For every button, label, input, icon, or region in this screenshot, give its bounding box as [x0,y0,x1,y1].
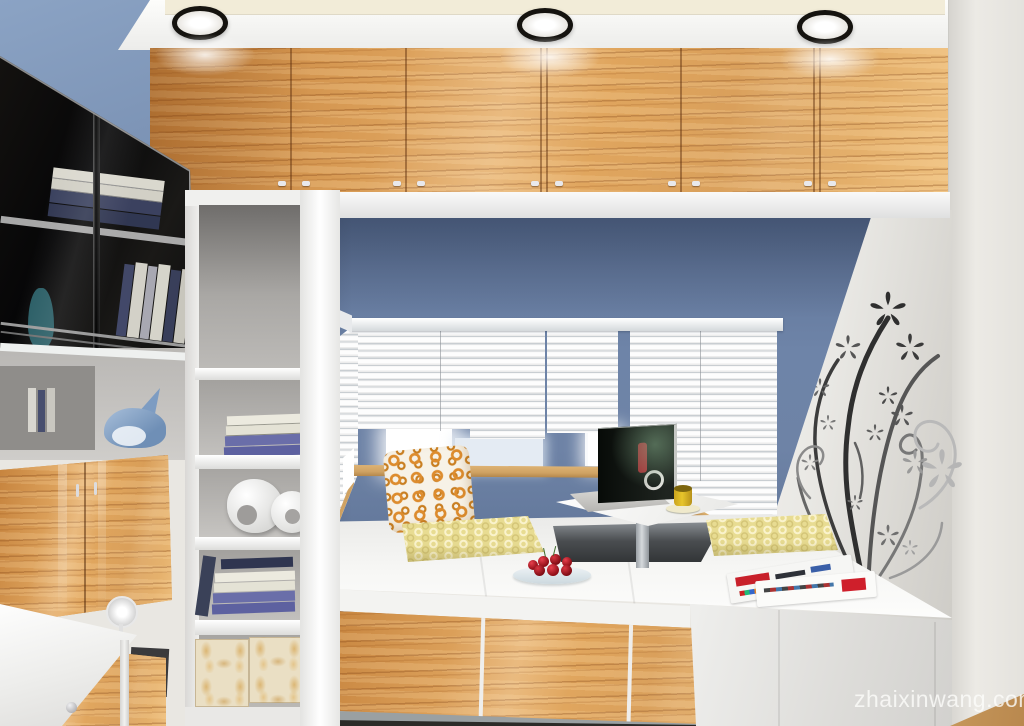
light-glow-3 [775,36,885,82]
vase-hole [285,509,300,524]
cabinet-handle[interactable] [531,181,539,186]
magazine-blue-block [810,564,831,573]
shelf-board [195,455,303,469]
tower-corner-post [300,190,340,726]
tower-opening-vases [199,469,300,537]
magazine-color-bars [764,582,834,592]
shelf-board [195,620,303,635]
cabinet-handle[interactable] [555,181,563,186]
door-handle[interactable] [94,482,97,495]
door-handle[interactable] [76,484,79,497]
room-rendering: zhaixinwang.com [0,0,1024,726]
blind-panel-a [358,331,470,429]
magazine-red-block [841,578,866,592]
cabinet-handle[interactable] [692,181,700,186]
storage-box [249,637,303,703]
book [212,602,295,615]
book [38,390,45,432]
vase-hole [237,505,257,525]
desk-leg [120,640,129,726]
bird-belly [112,426,146,446]
tower-opening-books [199,380,300,455]
book [221,557,293,570]
light-glow-1 [150,32,260,78]
door-reflection [98,458,106,608]
blind-panel-c [547,331,618,433]
storage-box [195,639,249,707]
cabinet-handle[interactable] [804,181,812,186]
blind-headrail [350,318,783,331]
screen-image-haze [598,425,674,503]
cherry [534,565,545,576]
cabinet-handle[interactable] [828,181,836,186]
cabinet-seam [680,48,682,194]
shelf-board [195,368,303,380]
left-wood-cabinet[interactable] [0,440,172,630]
seat-pillow [383,444,476,533]
drawer-gap [478,606,485,726]
laptop-screen [598,424,677,503]
cherries [524,550,584,578]
cabinet-seam [290,48,292,194]
book [47,388,55,432]
cabinet-seam [405,48,407,194]
cabinet-handle[interactable] [278,181,286,186]
cabinet-handle[interactable] [393,181,401,186]
book [28,388,36,432]
blind-panel-b [470,331,545,439]
cabinet-handle[interactable] [668,181,676,186]
cherry [561,565,572,576]
table-pedestal [636,520,649,568]
cabinet-handle[interactable] [302,181,310,186]
door-reflection [58,460,67,610]
shelf-shadow [0,366,95,450]
light-glow-2 [495,34,605,80]
mug-opening [674,485,692,492]
panel-seam [778,610,780,726]
watermark: zhaixinwang.com [854,686,1024,713]
tower-opening-books-2 [199,550,300,620]
yellow-mug [674,488,692,506]
cherry [547,564,559,576]
door-gap [84,455,86,615]
drawer-knob[interactable] [66,702,77,713]
shelf-tower [165,190,340,726]
shelf-board [195,537,303,550]
tower-opening-top [199,205,300,368]
cabinet-handle[interactable] [417,181,425,186]
blind-cord-1 [440,331,441,431]
magazines [728,556,888,610]
tower-opening-boxes [199,635,300,707]
blind-cord-2 [700,331,701,481]
